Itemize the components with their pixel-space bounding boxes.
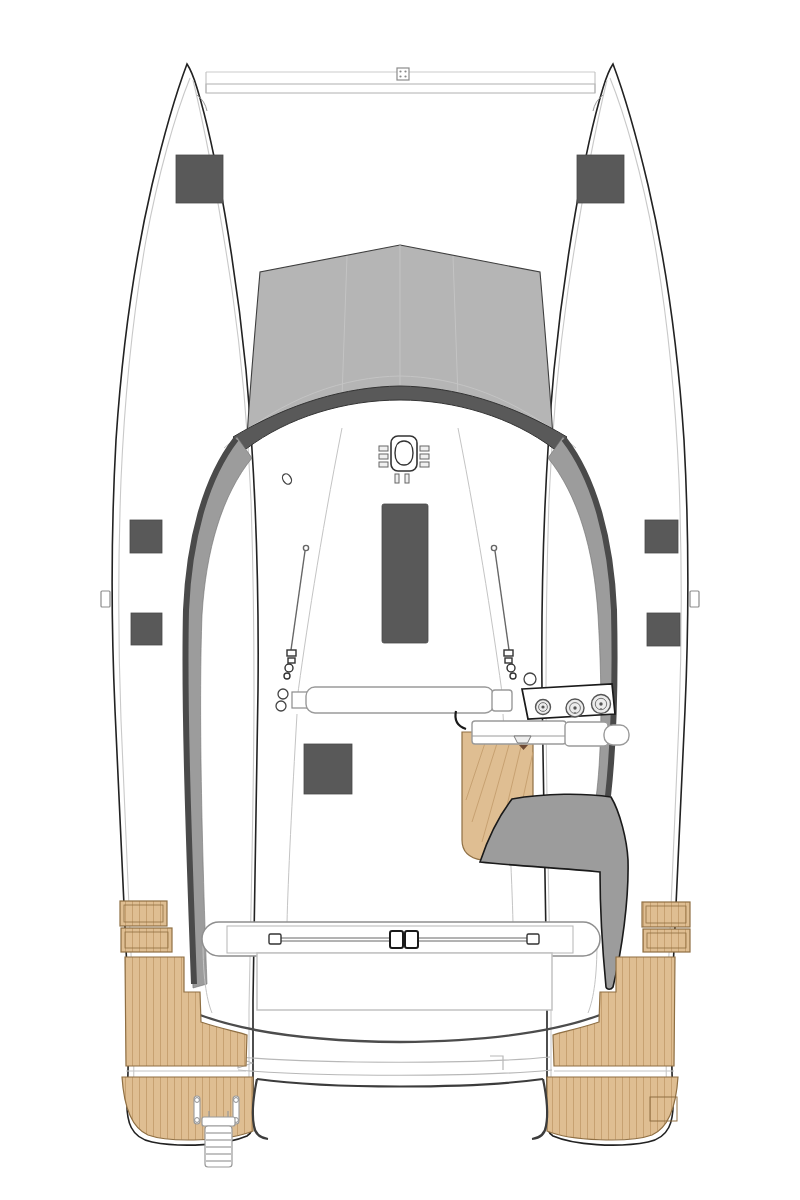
forward-crossbeam [206,68,595,93]
boom [276,673,536,713]
cabin-skylight-hatch [382,504,428,643]
deck-plan-page [0,0,800,1200]
port-gate-notch [101,591,110,607]
transom-sweep [253,1079,547,1139]
traveler-end-stop [269,934,281,944]
starboard-swim-platform [547,1077,678,1140]
traveler-car [390,931,418,948]
mainsheet-ring [524,673,536,685]
gooseneck-ring [276,701,286,711]
traveler-end-stop [527,934,539,944]
deck-padeye [281,472,294,486]
mainsheet-traveler [202,922,600,956]
port-shroud [284,545,309,679]
crossbeam-center-fitting [397,68,409,80]
cockpit-bench [257,953,552,1010]
mast-step [379,436,429,483]
transom-ladder [202,1111,235,1167]
grab-handle [194,1096,200,1124]
starboard-shroud [491,545,516,679]
aft-step [238,1056,552,1075]
winch [536,700,551,715]
starboard-gate-notch [690,591,699,607]
cockpit-aft-sweep [200,1015,600,1042]
winch [566,699,584,717]
helm-station-panel [522,684,615,719]
winch [592,695,611,714]
port-teak-steps [120,901,172,952]
starboard-teak-steps [642,902,690,952]
gooseneck-ring [278,689,288,699]
cabin-aft-hatch [304,744,352,794]
cleat [514,736,531,743]
deck-plan-svg [0,0,800,1200]
